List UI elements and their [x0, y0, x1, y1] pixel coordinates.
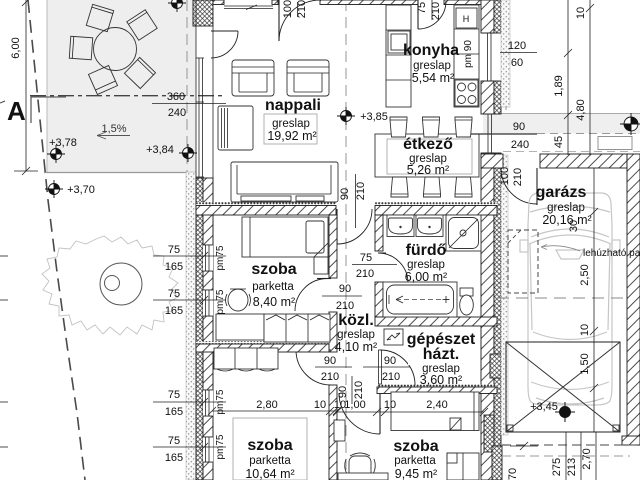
svg-text:2,50: 2,50: [579, 264, 591, 285]
svg-text:75: 75: [360, 252, 372, 264]
svg-text:10: 10: [575, 7, 587, 19]
svg-text:szoba: szoba: [393, 438, 438, 455]
svg-text:165: 165: [165, 305, 183, 317]
svg-text:360: 360: [167, 91, 185, 103]
svg-text:1,00: 1,00: [344, 399, 365, 411]
svg-text:210: 210: [353, 381, 365, 399]
svg-text:2,40: 2,40: [426, 399, 447, 411]
svg-text:konyha: konyha: [403, 42, 459, 59]
svg-text:30: 30: [568, 220, 580, 232]
svg-text:1,89: 1,89: [553, 75, 565, 96]
svg-text:75: 75: [416, 2, 428, 14]
svg-text:6,00 m²: 6,00 m²: [405, 270, 447, 284]
svg-text:étkező: étkező: [403, 136, 453, 153]
svg-text:90: 90: [513, 121, 525, 133]
svg-text:90: 90: [324, 355, 336, 367]
svg-text:+3,78: +3,78: [49, 137, 77, 149]
svg-text:4,80: 4,80: [575, 99, 587, 120]
svg-text:nappali: nappali: [265, 97, 321, 114]
svg-text:165: 165: [165, 452, 183, 464]
svg-text:75: 75: [168, 389, 180, 401]
svg-text:210: 210: [382, 371, 400, 383]
svg-text:90: 90: [337, 386, 349, 398]
svg-text:210: 210: [321, 371, 339, 383]
svg-text:szoba: szoba: [247, 437, 292, 454]
svg-text:garázs: garázs: [536, 184, 587, 201]
svg-text:1,50: 1,50: [579, 353, 591, 374]
svg-text:75: 75: [168, 435, 180, 447]
svg-text:2,80: 2,80: [256, 399, 277, 411]
svg-text:10: 10: [334, 399, 346, 411]
svg-text:90: 90: [339, 283, 351, 295]
svg-text:3,60 m²: 3,60 m²: [420, 373, 462, 387]
svg-text:240: 240: [511, 139, 529, 151]
svg-text:165: 165: [165, 261, 183, 273]
svg-text:pm75: pm75: [215, 289, 226, 314]
svg-text:10,64 m²: 10,64 m²: [245, 467, 294, 480]
svg-text:275: 275: [551, 458, 563, 476]
svg-text:parketta: parketta: [394, 455, 436, 467]
svg-text:pm75: pm75: [215, 434, 226, 459]
svg-text:90: 90: [339, 188, 351, 200]
svg-text:+3,70: +3,70: [67, 184, 95, 196]
svg-text:100: 100: [282, 0, 294, 18]
svg-text:210: 210: [336, 300, 354, 312]
svg-text:213: 213: [566, 458, 578, 476]
svg-text:60: 60: [511, 57, 523, 69]
svg-text:parketta: parketta: [252, 281, 294, 293]
svg-text:45: 45: [553, 136, 565, 148]
svg-text:H: H: [463, 14, 470, 24]
svg-text:240: 240: [168, 107, 186, 119]
svg-text:70: 70: [507, 468, 519, 480]
svg-text:10: 10: [384, 399, 396, 411]
svg-text:20,16 m²: 20,16 m²: [542, 213, 591, 227]
svg-text:+3,45: +3,45: [530, 401, 558, 413]
svg-text:szoba: szoba: [251, 261, 296, 278]
svg-text:+3,84: +3,84: [146, 144, 174, 156]
svg-text:pm75: pm75: [215, 245, 226, 270]
svg-text:+3,85: +3,85: [360, 111, 388, 123]
svg-text:19,92 m²: 19,92 m²: [267, 129, 316, 143]
svg-text:10: 10: [579, 324, 591, 336]
svg-text:6,00: 6,00: [10, 37, 22, 58]
svg-text:házt.: házt.: [423, 346, 459, 363]
svg-text:100: 100: [499, 167, 511, 185]
svg-text:210: 210: [355, 182, 367, 200]
svg-text:1,5%: 1,5%: [101, 123, 126, 135]
svg-text:parketta: parketta: [249, 455, 291, 467]
svg-text:75: 75: [168, 244, 180, 256]
svg-text:közl.: közl.: [338, 312, 374, 329]
svg-text:fürdő: fürdő: [406, 242, 447, 259]
svg-text:10: 10: [314, 399, 326, 411]
svg-text:210: 210: [356, 268, 374, 280]
svg-text:lehúzható pad: lehúzható pad: [583, 248, 640, 259]
svg-text:8,40 m²: 8,40 m²: [253, 295, 295, 309]
svg-text:4,10 m²: 4,10 m²: [335, 340, 377, 354]
svg-text:90: 90: [384, 355, 396, 367]
svg-text:165: 165: [165, 406, 183, 418]
svg-text:9,45 m²: 9,45 m²: [395, 467, 437, 480]
svg-text:A: A: [7, 96, 26, 126]
svg-text:75: 75: [168, 288, 180, 300]
svg-text:5,26 m²: 5,26 m²: [407, 163, 449, 177]
svg-text:2,70: 2,70: [581, 448, 593, 469]
svg-text:5,54 m²: 5,54 m²: [412, 71, 454, 85]
svg-text:210: 210: [512, 168, 524, 186]
svg-text:120: 120: [508, 40, 526, 52]
svg-text:pm 90: pm 90: [463, 40, 474, 68]
